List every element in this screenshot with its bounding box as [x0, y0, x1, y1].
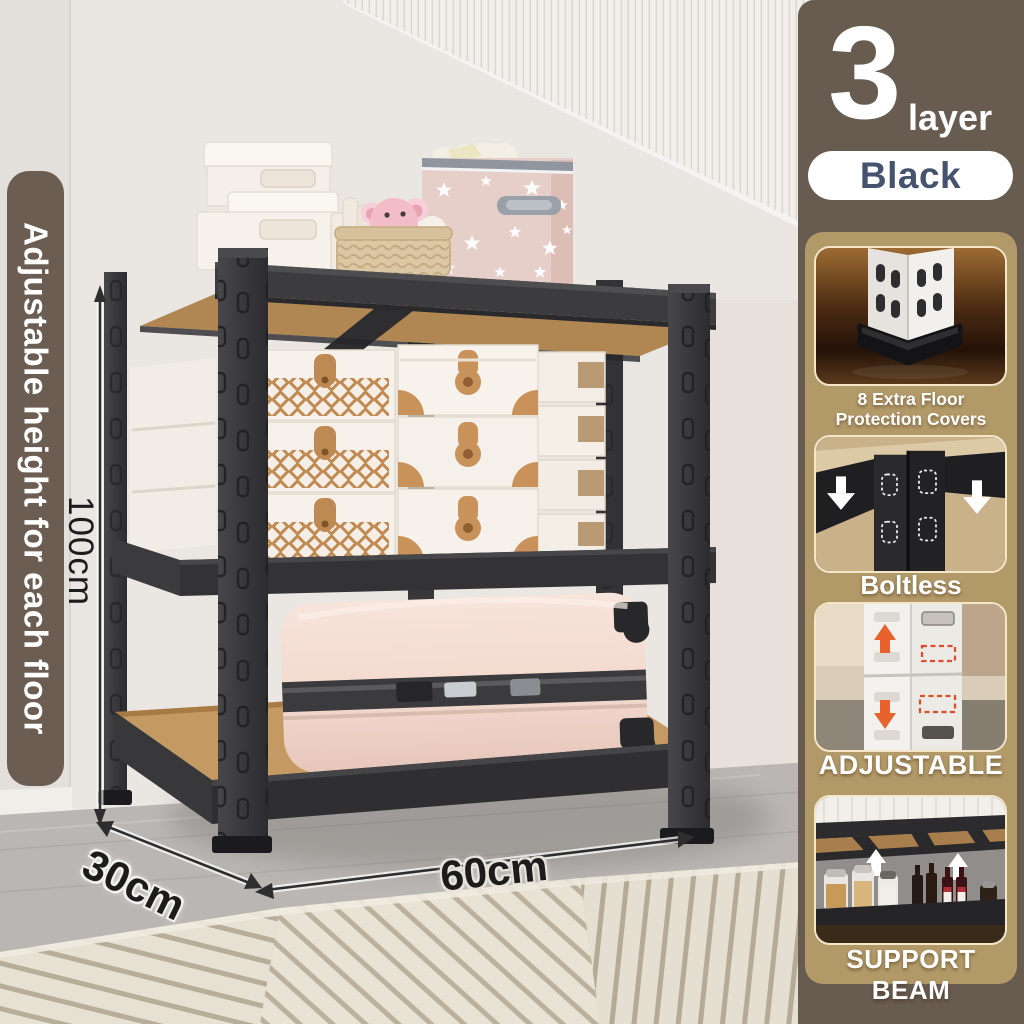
suitcase: [279, 591, 656, 774]
product-listing-image: Adjustable height for each floor 100cm 3…: [0, 0, 1024, 1024]
feature-caption-boltless: Boltless: [805, 570, 1017, 601]
layer-count-label: layer: [908, 97, 992, 139]
feature-caption-adjustable: ADJUSTABLE: [805, 750, 1017, 781]
feature-caption-support-beam: SUPPORT BEAM: [805, 944, 1017, 1006]
color-option-pill: Black: [808, 151, 1013, 200]
height-dimension-label: 100cm: [60, 496, 100, 606]
feature-thumb-support-beam: [814, 795, 1007, 945]
product-options-sidebar: 3 layer Black: [798, 0, 1024, 1024]
feature-panel: 8 Extra FloorProtection Covers Boltless …: [805, 232, 1017, 984]
feature-caption-floor-protection: 8 Extra FloorProtection Covers: [805, 389, 1017, 429]
feature-thumb-adjustable: [814, 602, 1007, 752]
white-side-box: [130, 358, 216, 553]
color-option-label: Black: [860, 155, 961, 197]
banner-text: Adjustable height for each floor: [17, 222, 55, 735]
feature-thumb-boltless: [814, 435, 1007, 573]
feature-thumb-floor-protection: [814, 246, 1007, 386]
layer-count-badge: 3: [828, 2, 901, 145]
suitcase-lock: [396, 681, 433, 702]
storage-cases-middle-shelf: [262, 345, 605, 564]
adjustable-height-banner: Adjustable height for each floor: [7, 171, 64, 786]
